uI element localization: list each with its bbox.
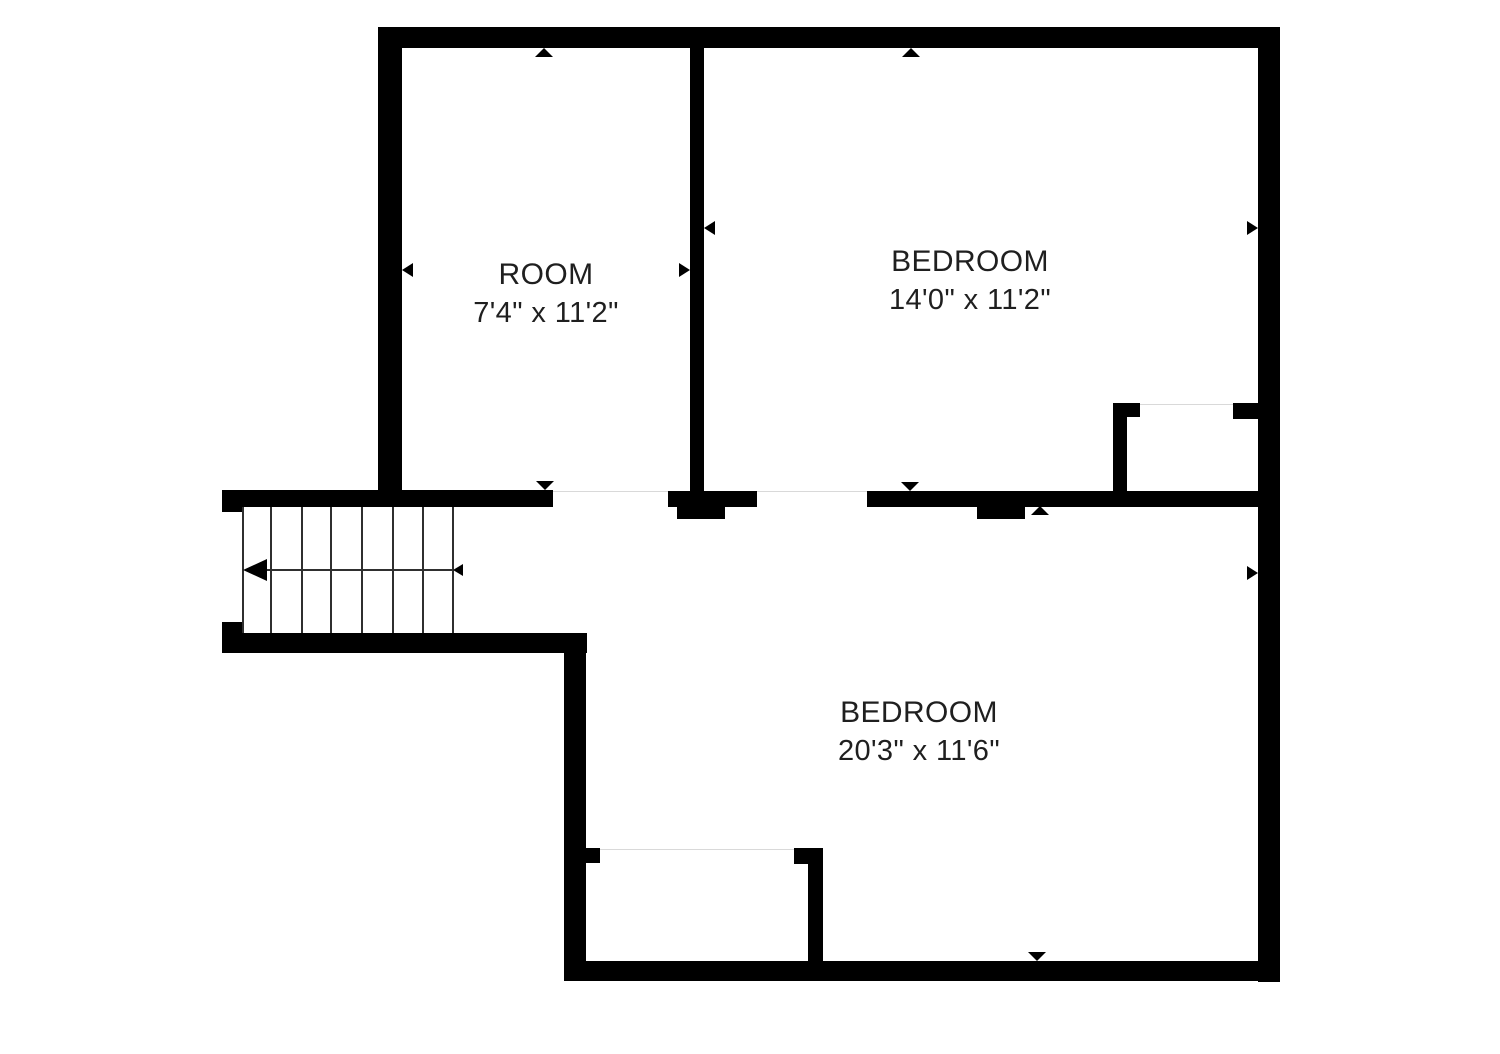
pointer-up-icon	[1031, 506, 1049, 515]
pointer-right-icon	[1247, 566, 1258, 580]
outer-wall-right	[1258, 27, 1280, 982]
room-dimensions: 20'3" x 11'6"	[653, 732, 1185, 771]
closet-top-jamb-left	[1113, 403, 1140, 417]
pointer-left-icon	[704, 221, 715, 235]
outer-wall-left-upper	[378, 27, 402, 507]
door-opening-line	[553, 491, 668, 492]
stair-arrow-tail-icon	[453, 564, 463, 576]
middle-wall-segment-a	[222, 490, 553, 507]
room-label-group: ROOM 7'4" x 11'2"	[402, 255, 690, 333]
stair-direction-line	[258, 569, 453, 571]
pointer-up-icon	[535, 48, 553, 57]
closet-opening-line	[1140, 404, 1233, 405]
outer-wall-top	[378, 27, 1280, 48]
interior-wall-room-bedroom	[690, 48, 704, 491]
floor-plan: ROOM 7'4" x 11'2" BEDROOM 14'0" x 11'2" …	[0, 0, 1500, 1054]
room-name: BEDROOM	[653, 693, 1185, 732]
closet-bottom-wall-right	[808, 848, 823, 981]
room-dimensions: 7'4" x 11'2"	[402, 294, 690, 333]
wall-left-lower-bedroom	[564, 633, 586, 981]
stair-arrow-head-icon	[243, 559, 267, 581]
middle-wall-segment-b-jamb	[677, 506, 725, 519]
stair-wall-left-top	[222, 490, 242, 512]
middle-wall-segment-b	[668, 491, 757, 507]
pointer-down-icon	[901, 482, 919, 491]
room-name: ROOM	[402, 255, 690, 294]
stair-wall-bottom	[222, 633, 587, 653]
closet-opening-line	[600, 849, 794, 850]
middle-wall-segment-c	[867, 491, 1258, 507]
pointer-up-icon	[902, 48, 920, 57]
pointer-right-icon	[1247, 221, 1258, 235]
closet-top-wall-left	[1113, 403, 1127, 506]
pointer-down-icon	[1028, 952, 1046, 961]
closet-top-jamb-right	[1233, 403, 1258, 419]
closet-bottom-jamb-left	[586, 848, 600, 863]
room-name: BEDROOM	[704, 242, 1236, 281]
door-opening-line	[757, 491, 867, 492]
middle-wall-segment-c-jamb	[977, 506, 1025, 519]
closet-bottom-jamb-right	[794, 848, 823, 864]
pointer-down-icon	[536, 481, 554, 490]
outer-wall-bottom	[564, 961, 1280, 981]
room-label-group: BEDROOM 14'0" x 11'2"	[704, 242, 1236, 320]
room-label-group: BEDROOM 20'3" x 11'6"	[653, 693, 1185, 771]
room-dimensions: 14'0" x 11'2"	[704, 281, 1236, 320]
